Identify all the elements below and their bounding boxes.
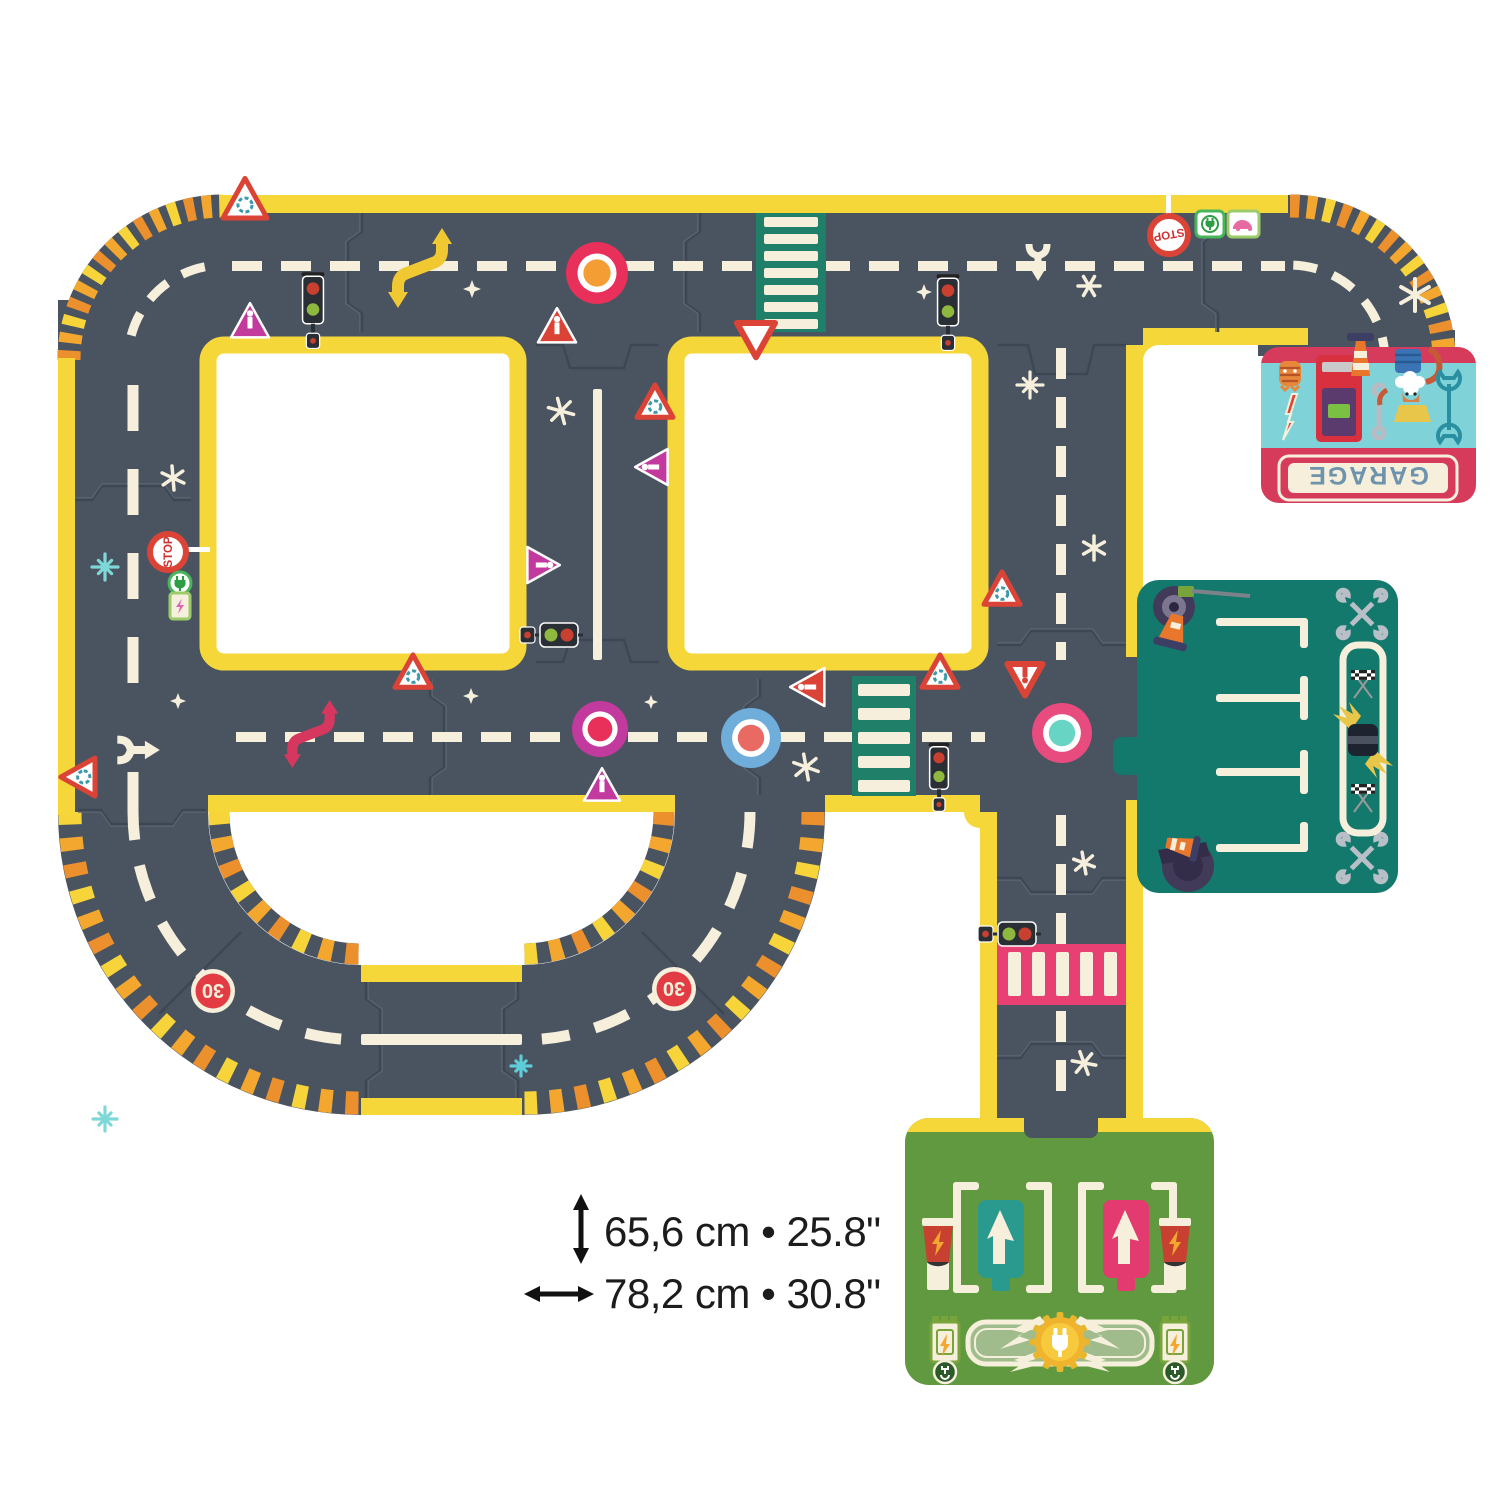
svg-text:GARAGE: GARAGE <box>1307 461 1429 489</box>
svg-text:78,2 cm • 30.8": 78,2 cm • 30.8" <box>604 1270 881 1317</box>
svg-text:30: 30 <box>663 977 685 999</box>
svg-text:65,6 cm • 25.8": 65,6 cm • 25.8" <box>604 1208 881 1255</box>
svg-text:STOP: STOP <box>163 536 175 567</box>
svg-text:30: 30 <box>202 979 224 1001</box>
